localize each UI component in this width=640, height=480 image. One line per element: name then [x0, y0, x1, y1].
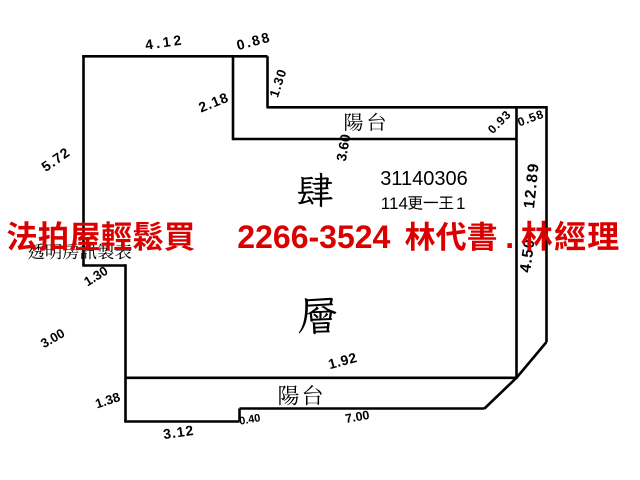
svg-text:.: . [505, 219, 514, 255]
svg-text:114: 114 [381, 194, 408, 213]
svg-text:31140306: 31140306 [380, 168, 468, 190]
svg-text:1: 1 [456, 194, 465, 213]
svg-text:2266-3524: 2266-3524 [237, 219, 390, 255]
